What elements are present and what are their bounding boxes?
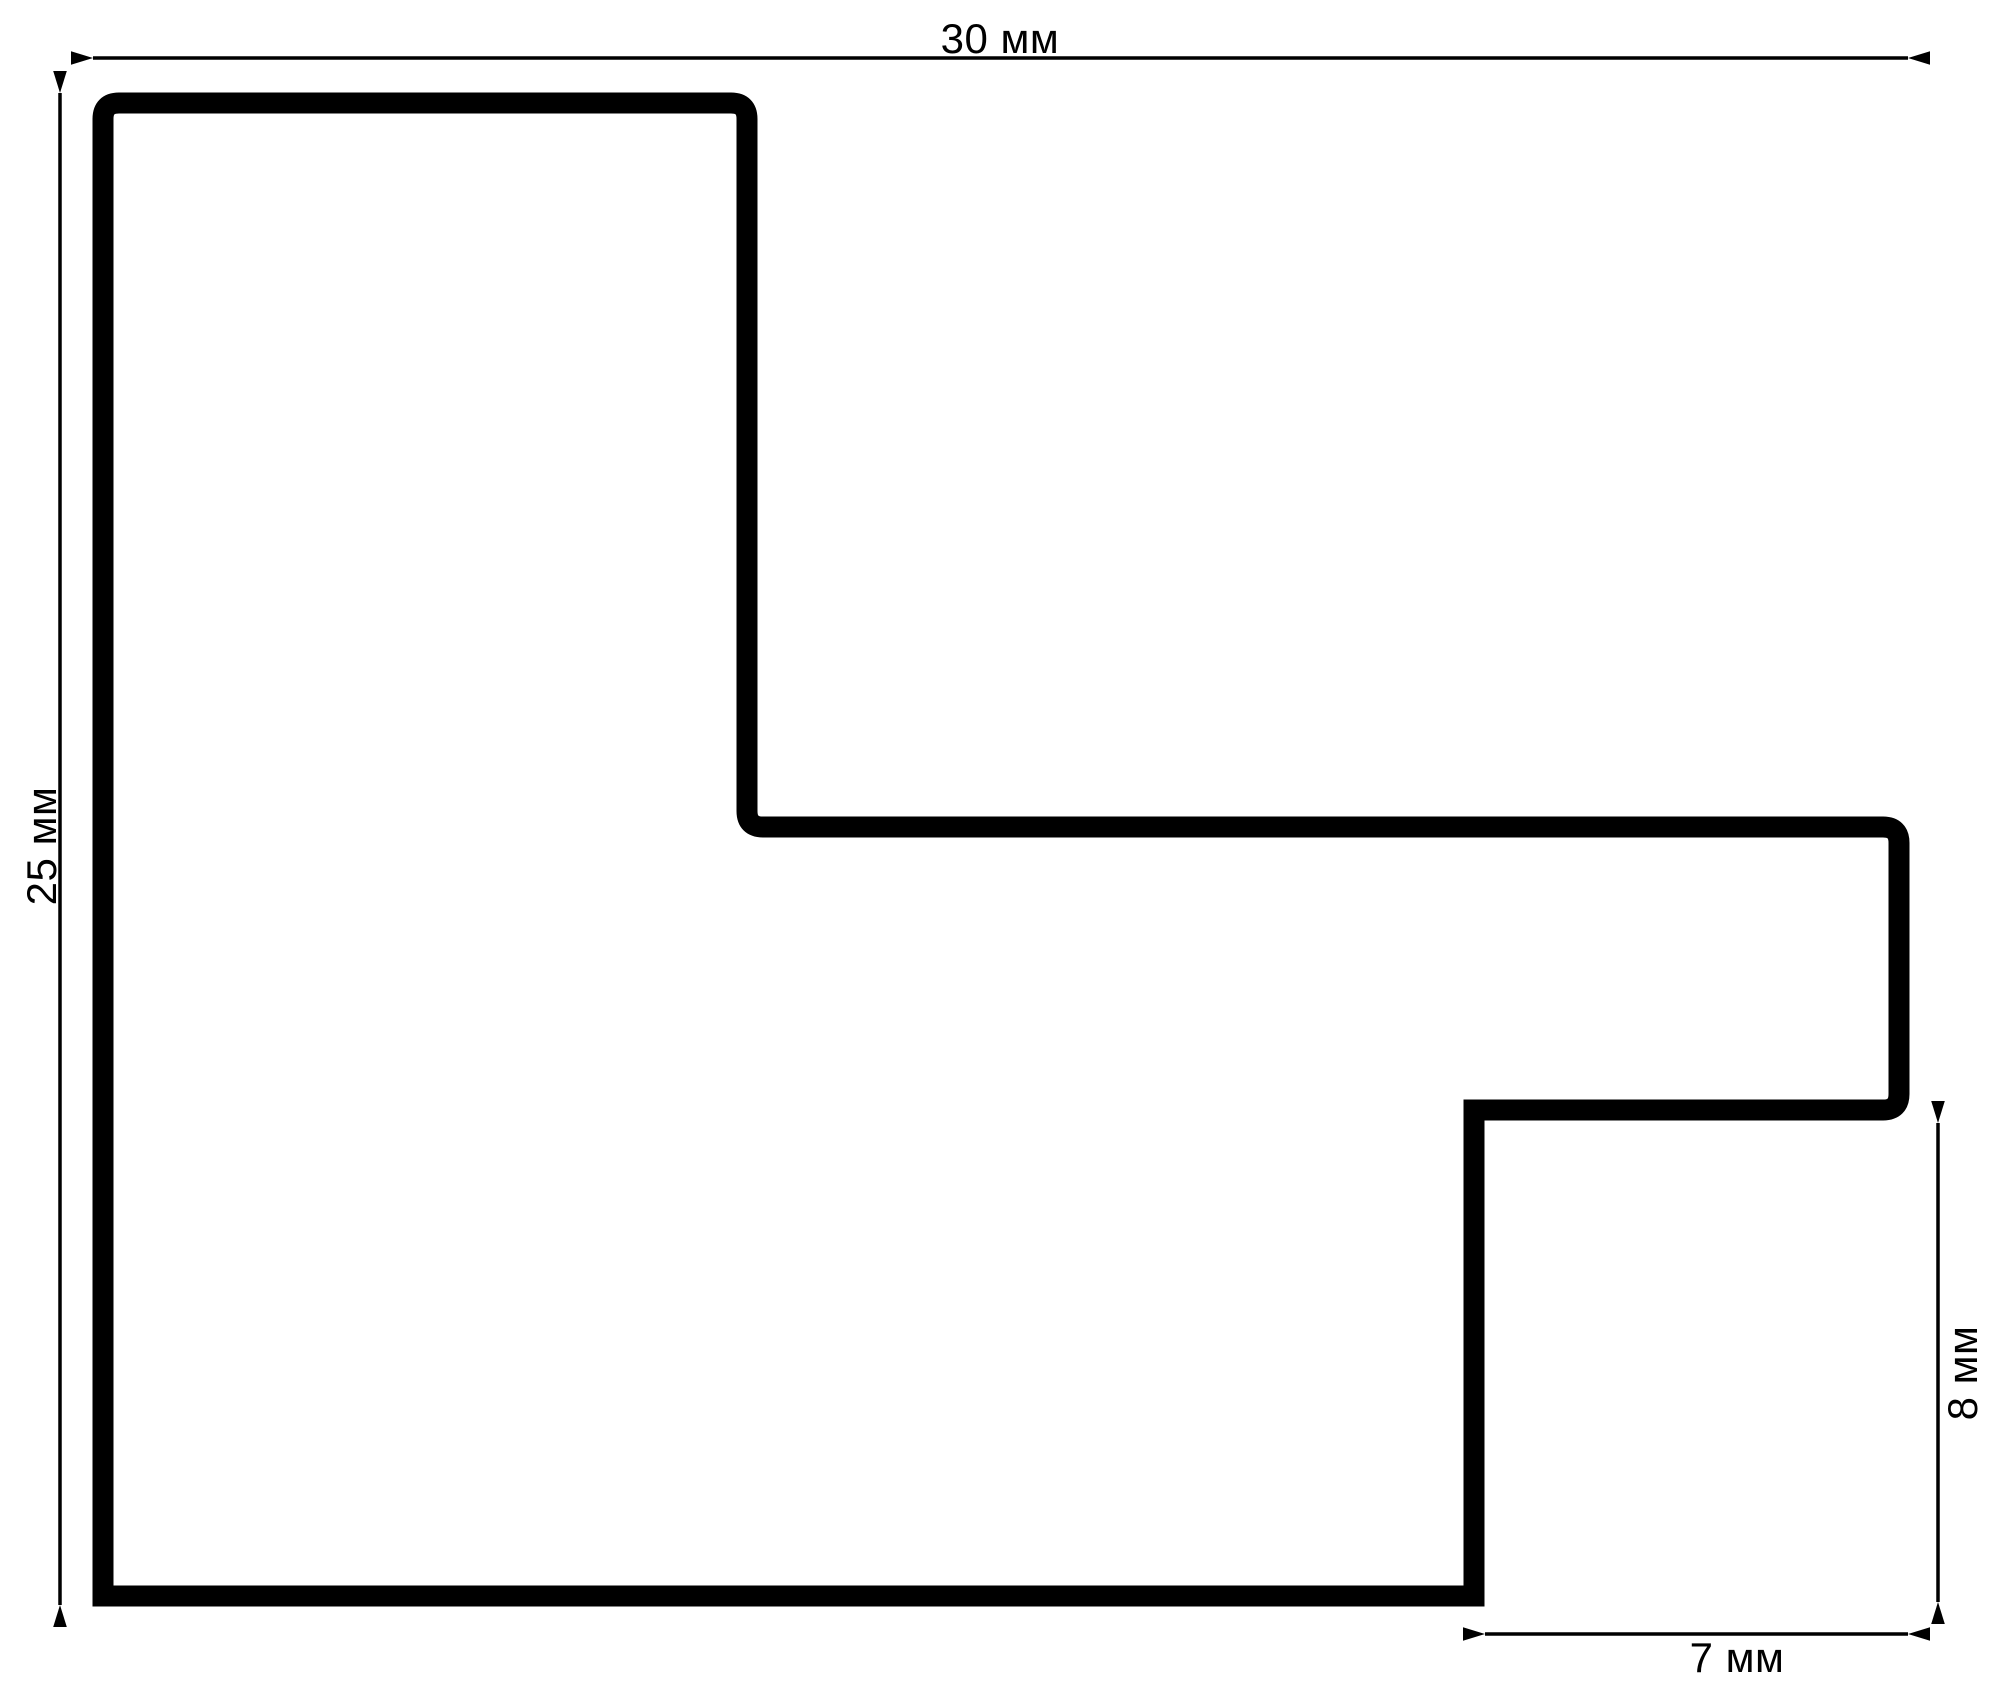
dimension-total-height: 25 мм <box>18 93 65 1605</box>
dimension-step-height-label: 8 мм <box>1939 1326 1986 1421</box>
profile-outline <box>103 103 1899 1596</box>
dimension-step-width: 7 мм <box>1485 1634 1908 1681</box>
dimension-step-width-label: 7 мм <box>1690 1634 1785 1681</box>
dimension-total-width-label: 30 мм <box>941 15 1060 62</box>
technical-drawing-canvas: 30 мм 25 мм 8 мм 7 мм <box>0 0 2000 1697</box>
technical-drawing: 30 мм 25 мм 8 мм 7 мм <box>0 0 2000 1697</box>
dimension-total-width: 30 мм <box>93 15 1908 62</box>
dimension-total-height-label: 25 мм <box>18 787 65 906</box>
dimension-step-height: 8 мм <box>1938 1123 1986 1602</box>
